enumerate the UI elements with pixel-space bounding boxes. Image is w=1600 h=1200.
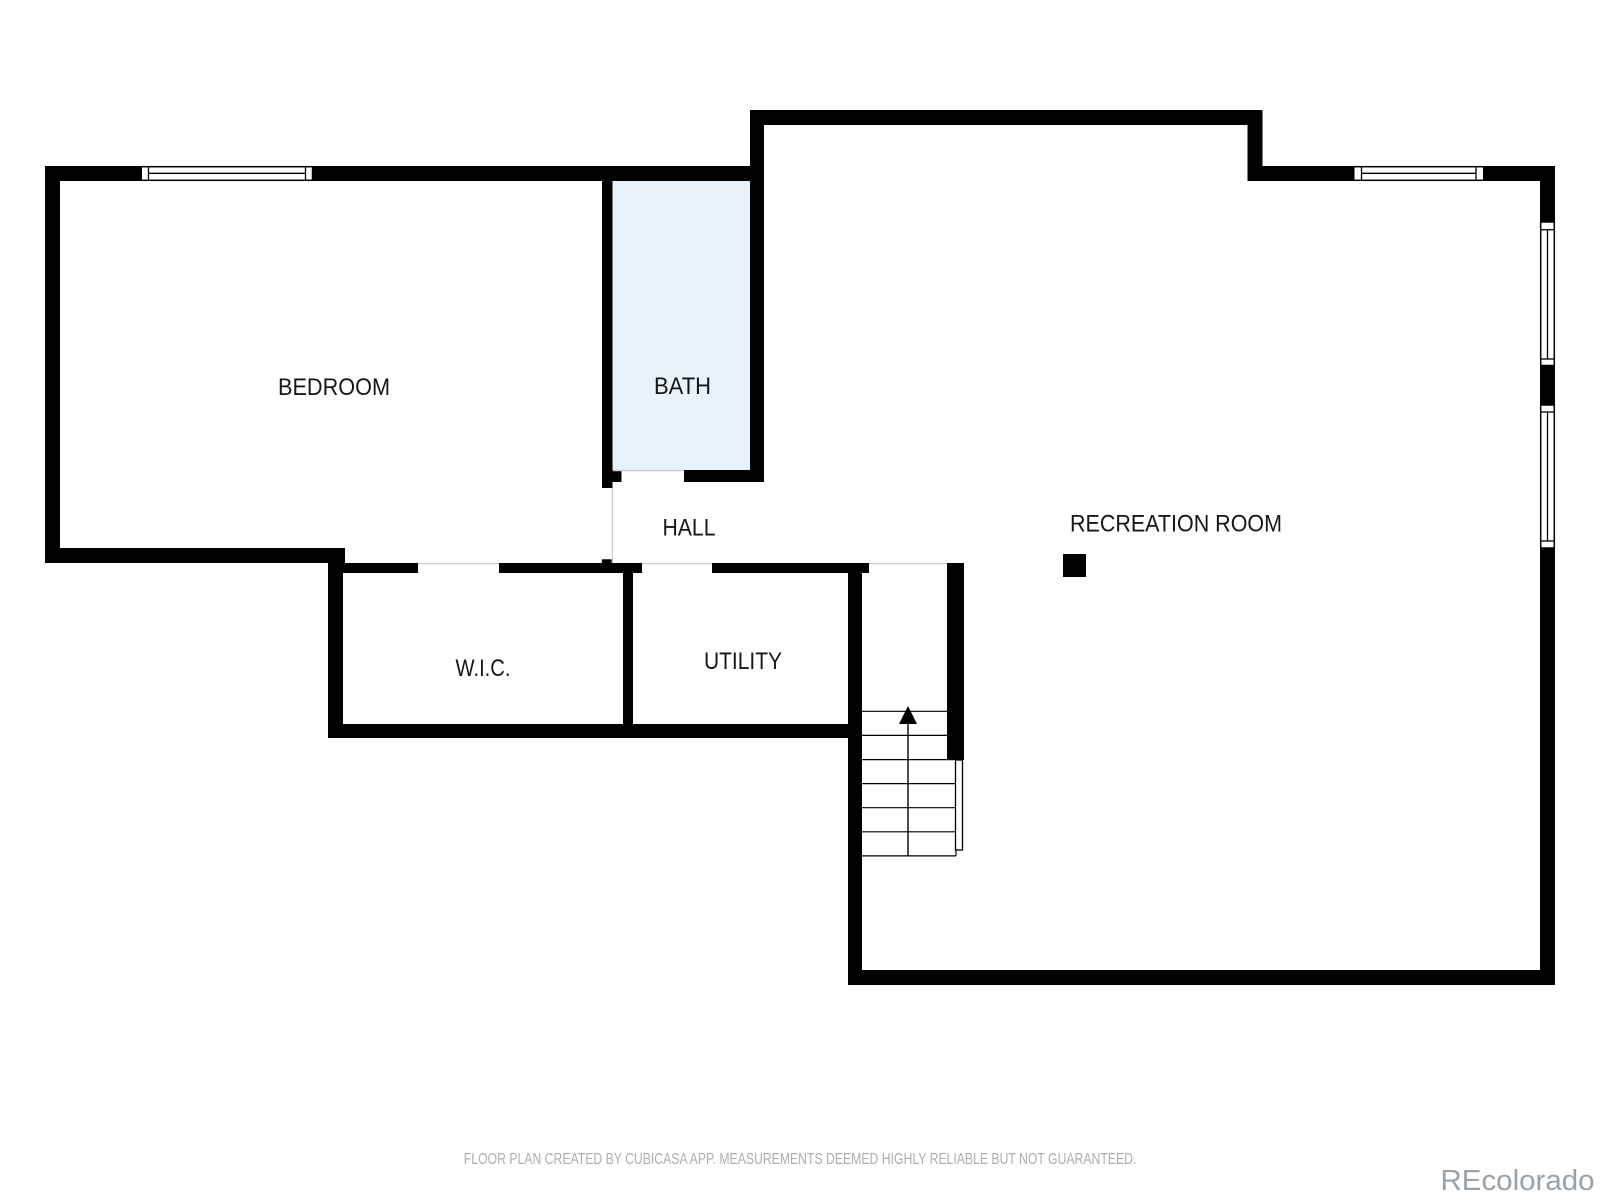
svg-text:FLOOR PLAN CREATED BY CUBICASA: FLOOR PLAN CREATED BY CUBICASA APP. MEAS… bbox=[464, 1151, 1137, 1168]
svg-text:BEDROOM: BEDROOM bbox=[278, 374, 390, 401]
svg-text:REcolorado: REcolorado bbox=[1441, 1165, 1595, 1197]
svg-text:RECREATION ROOM: RECREATION ROOM bbox=[1070, 511, 1282, 538]
svg-text:HALL: HALL bbox=[663, 515, 716, 542]
svg-text:W.I.C.: W.I.C. bbox=[456, 655, 511, 682]
svg-text:BATH: BATH bbox=[654, 373, 711, 400]
svg-text:UTILITY: UTILITY bbox=[704, 648, 782, 675]
